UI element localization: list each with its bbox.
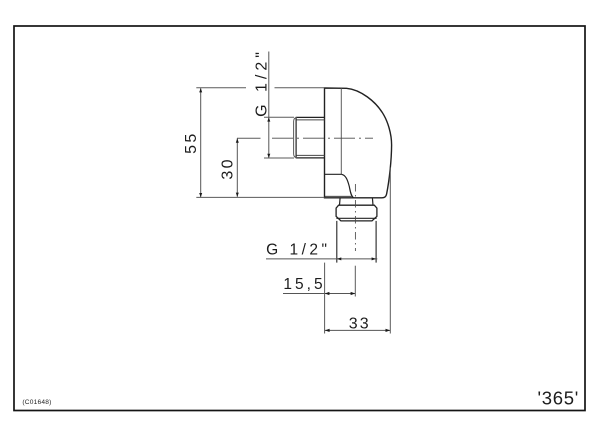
svg-text:30: 30: [220, 157, 237, 180]
svg-text:33: 33: [349, 316, 371, 333]
svg-text:'365': '365': [538, 387, 579, 408]
svg-text:55: 55: [183, 131, 200, 154]
svg-text:G 1/2": G 1/2": [253, 48, 270, 117]
svg-text:15,5: 15,5: [283, 276, 325, 293]
svg-text:G 1/2": G 1/2": [266, 242, 330, 259]
svg-text:(C01648): (C01648): [22, 399, 51, 406]
